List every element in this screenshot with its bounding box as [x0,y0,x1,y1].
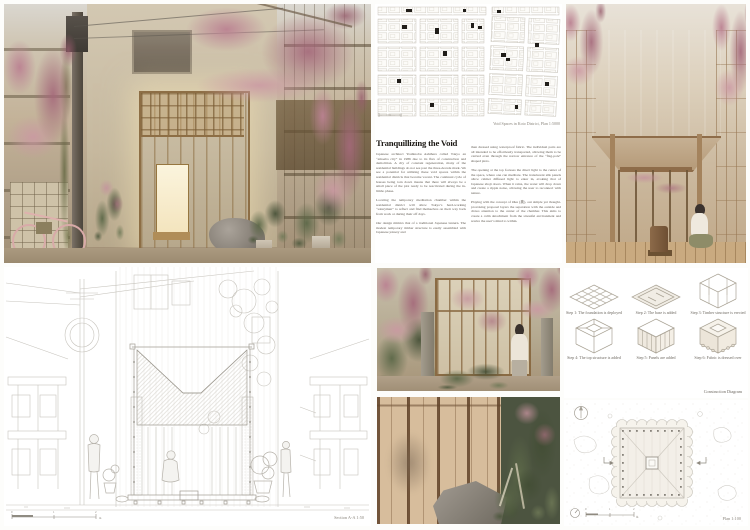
map-and-essay-column: Void Spaces in Koto District, Plan 1:500… [375,4,562,263]
blossoms-top-right [509,397,560,451]
gravel-ground [4,248,371,263]
construction-step-label: Step 4: The top structure is added [564,355,624,360]
map-caption: Void Spaces in Koto District, Plan 1:500… [375,121,560,126]
construction-step: Step 5: Panels are added [626,315,686,360]
essay-column-right: then dressed using waterproof fabric. Th… [471,138,561,239]
stone-pillar [541,318,553,380]
construction-step-label: Step 5: Panels are added [626,355,686,360]
essay-title: Tranquillizing the Void [376,138,466,148]
cherry-blossom-right [304,74,371,224]
section-drawing: 0 1 2 m Section A-A 1:50 [4,267,371,526]
monstera-plant [245,194,291,246]
construction-diagram-panel: Step 1: The foundation is deployed Step … [564,268,748,398]
kneeling-figure [687,204,717,250]
render-chamber-interior [566,4,746,263]
cherry-blossom-left [4,28,80,168]
essay-paragraph: Japanese architect Yoshinobu Ashihara ca… [376,152,466,193]
blossom-top-right [708,4,746,114]
figure-ground-map [375,5,562,119]
essay-paragraph: Playing with the concept of Oku (奥), our… [471,200,561,223]
fabric-ceiling-volume [592,30,721,138]
blossom-top-left [566,4,608,92]
construction-step: Step 6: Fabric is dressed over [688,315,748,360]
structure-grid [620,428,684,498]
garden-blossoms [618,170,694,196]
construction-diagram-caption: Construction Diagram [704,389,742,394]
step1-foundation-icon [565,270,623,310]
figure-robe [511,334,528,362]
bicycle-basket [36,222,52,234]
blossom-bush [96,176,126,216]
essay-paragraph: The opening at the top focuses the direc… [471,168,561,196]
water-basin-stump [650,226,668,252]
section-drawing-panel: 0 1 2 m Section A-A 1:50 [4,267,371,526]
pavilion-threshold [153,232,190,240]
section-caption: Section A-A 1:50 [334,515,364,520]
essay-block: Tranquillizing the Void Japanese archite… [376,138,562,239]
blossom-right [511,268,560,324]
competition-poster-board: Void Spaces in Koto District, Plan 1:500… [0,0,750,530]
construction-step: Step 3: Timber structure is erected [688,270,748,315]
construction-step-label: Step 6: Fabric is dressed over [688,355,748,360]
construction-step: Step 2: The base is added [626,270,686,315]
scale-unit: m [99,516,102,520]
silhouette-behind-fabric [381,423,437,503]
bicycle-frame [24,211,67,222]
section-scale-bar [12,514,96,519]
render-assembly [377,268,560,391]
figure-skirt [689,234,713,248]
construction-steps-grid: Step 1: The foundation is deployed Step … [564,270,748,360]
essay-paragraph: then dressed using waterproof fabric. Th… [471,145,561,163]
render-fabric-closeup [377,397,560,524]
step6-fabric-icon [689,315,747,355]
step5-panels-icon [627,315,685,355]
plants-foreground [433,360,513,391]
essay-column-left: Tranquillizing the Void Japanese archite… [376,138,466,239]
scale-label: 2 [95,510,97,514]
plan-drawing: 0 1 2 m Plan 1:100 [564,400,748,526]
plan-drawing-panel: 0 1 2 m Plan 1:100 [564,400,748,526]
essay-paragraph: Locating the temporary meditation chambe… [376,198,466,216]
pavilion-door [156,164,189,240]
construction-step: Step 1: The foundation is deployed [564,270,624,315]
essay-paragraph: Our design mimics that of a traditional … [376,221,466,235]
timber-column [610,134,615,244]
city-blocks [378,7,560,116]
construction-step: Step 4: The top structure is added [564,315,624,360]
scale-label: 1 [53,510,55,514]
right-neighbour-house [300,339,369,489]
step2-base-icon [627,270,685,310]
spiky-plant [489,461,549,524]
left-neighbour-house [6,337,68,489]
step4-top-structure-icon [565,315,623,355]
blossom-through-frame [443,282,513,338]
render-alley-void [4,4,371,263]
scale-label: 0 [11,510,13,514]
plan-caption: Plan 1:100 [722,516,741,521]
step3-structure-icon [689,270,747,310]
